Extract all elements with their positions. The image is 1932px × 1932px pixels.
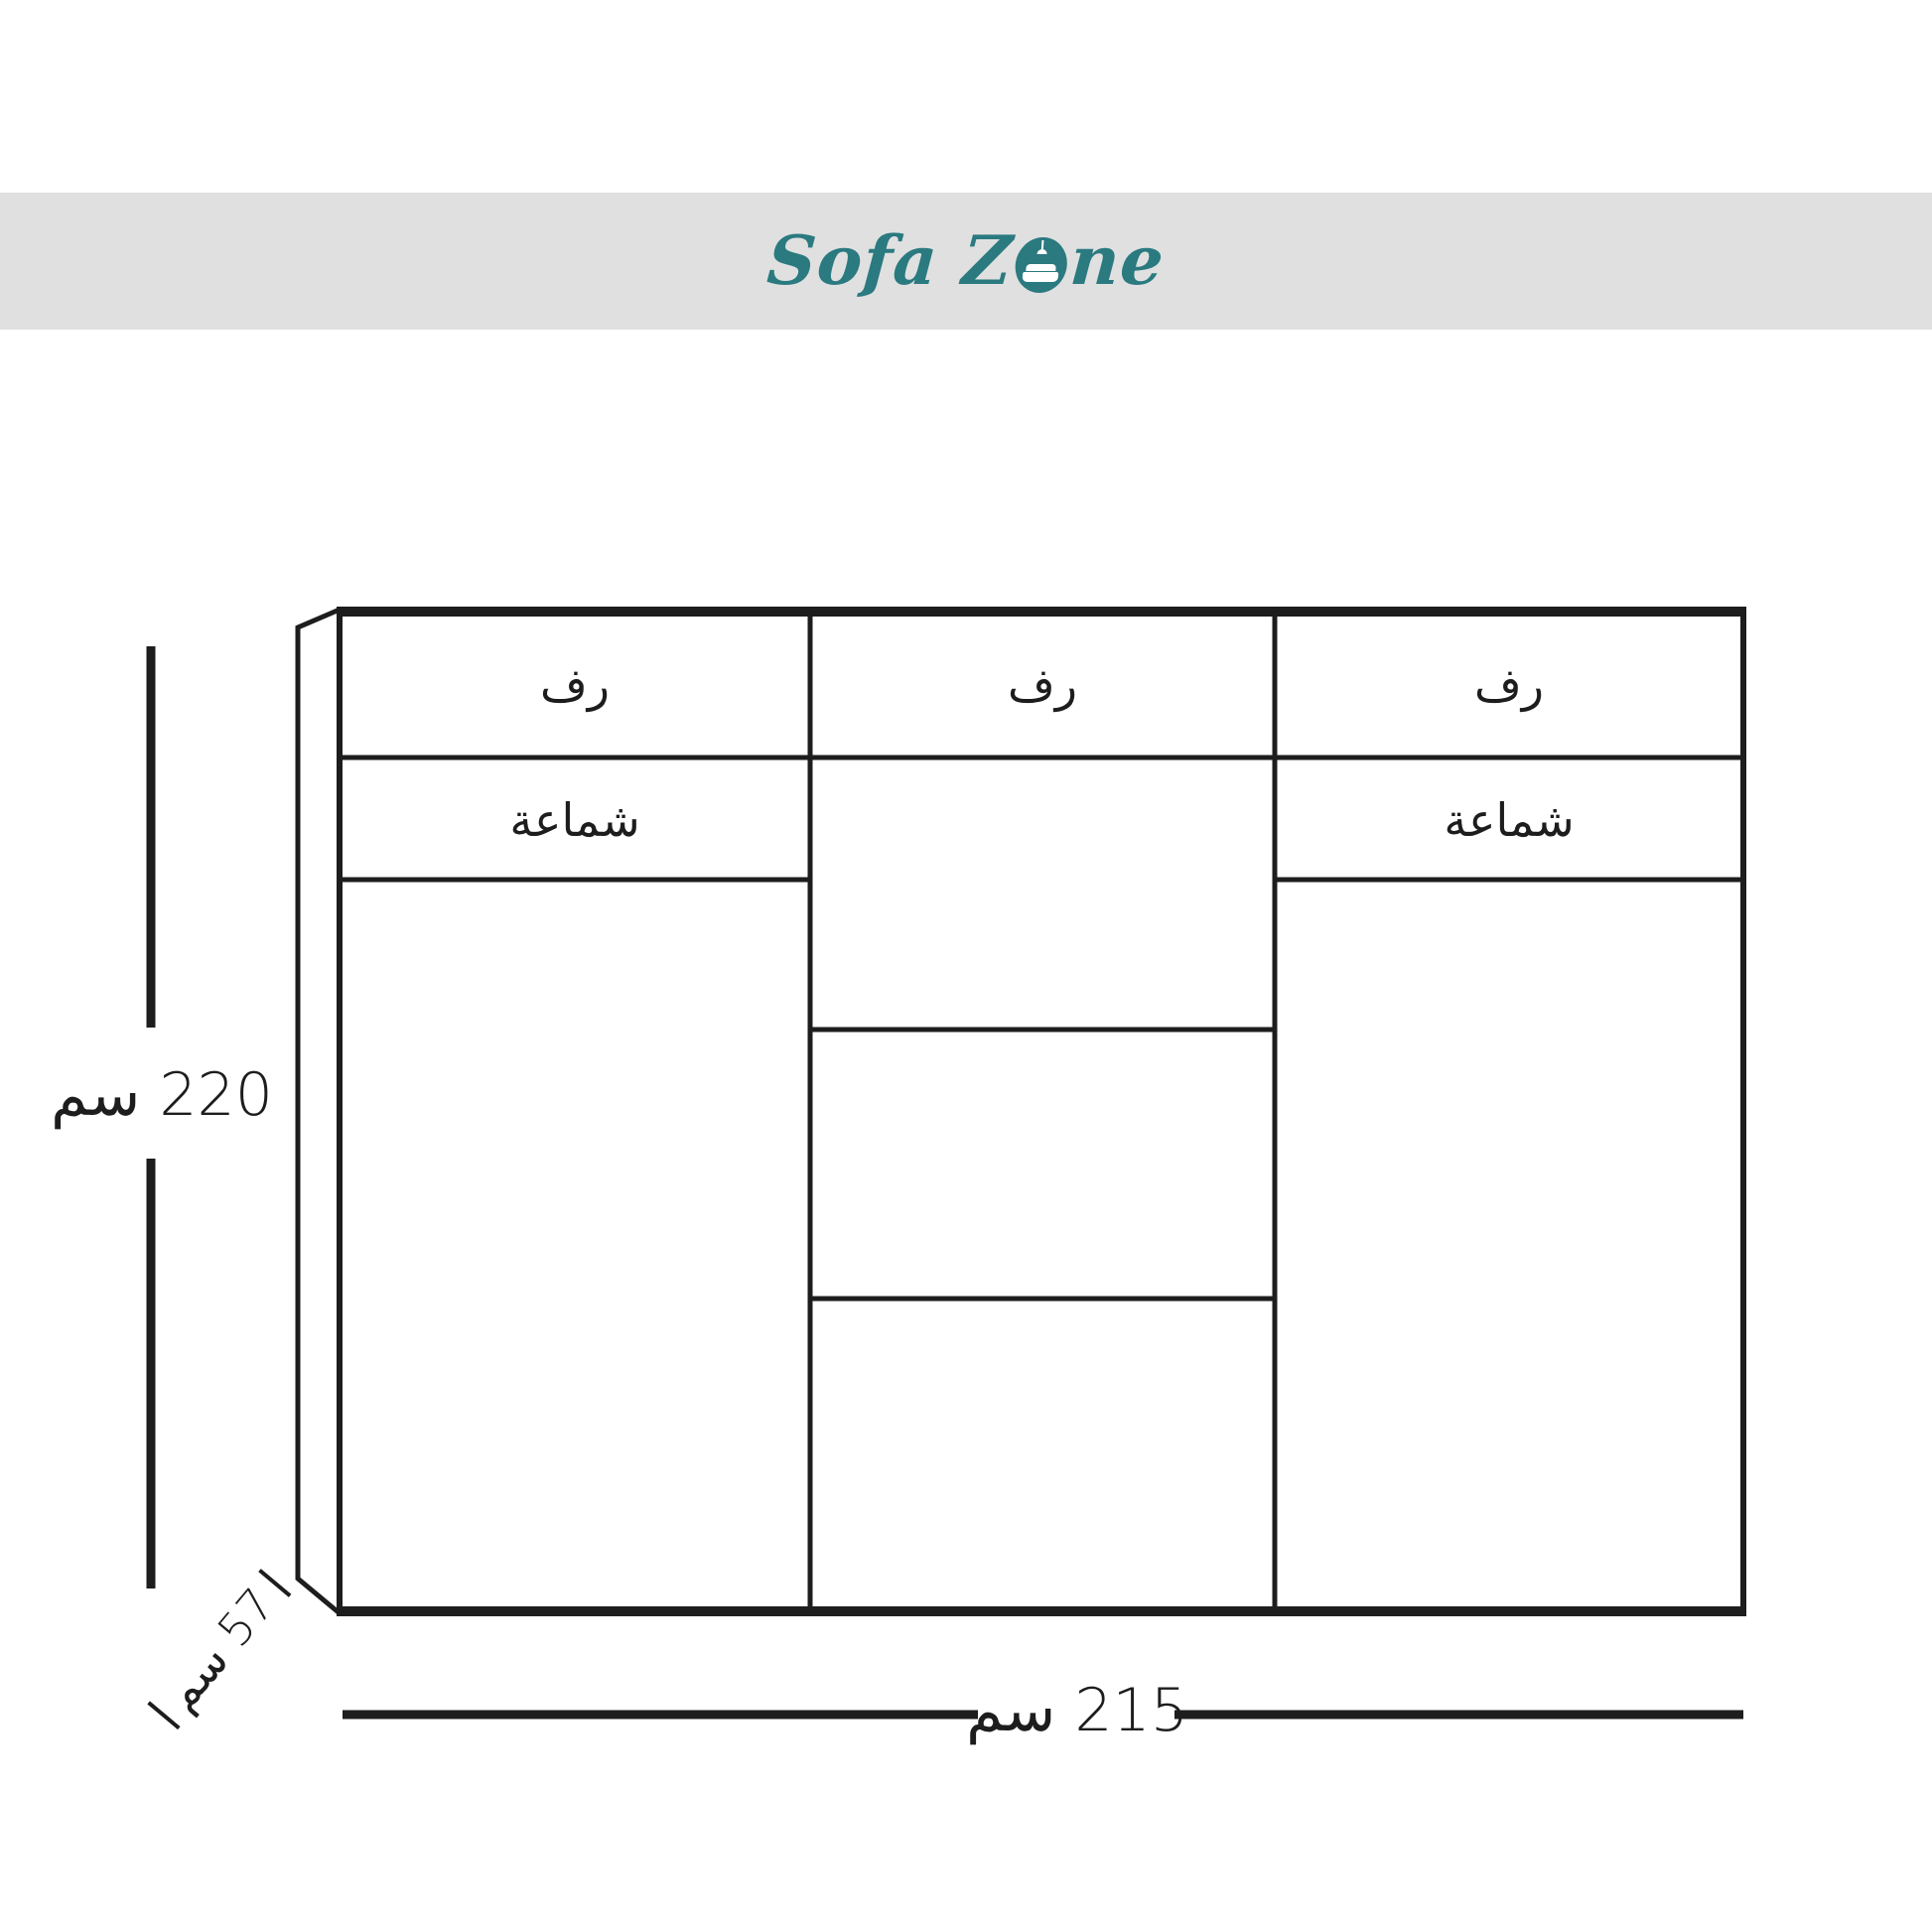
width-dimension-label: 215 سم [966,1676,1188,1745]
hanger-label-left: شماعة [509,793,639,847]
side-panel [298,610,340,1613]
hanger-label-right: شماعة [1444,793,1574,847]
wardrobe-diagram [0,0,1932,1932]
shelf-label-middle: رف [1008,658,1077,712]
height-dimension-label: 220 سم [51,1060,273,1130]
shelf-label-right: رف [1474,658,1544,712]
shelf-label-left: رف [540,658,610,712]
page: Sofa Zne رف رف رف شماعة شماعة 220 سم 215… [0,0,1932,1932]
wardrobe-outline [340,610,1743,1613]
